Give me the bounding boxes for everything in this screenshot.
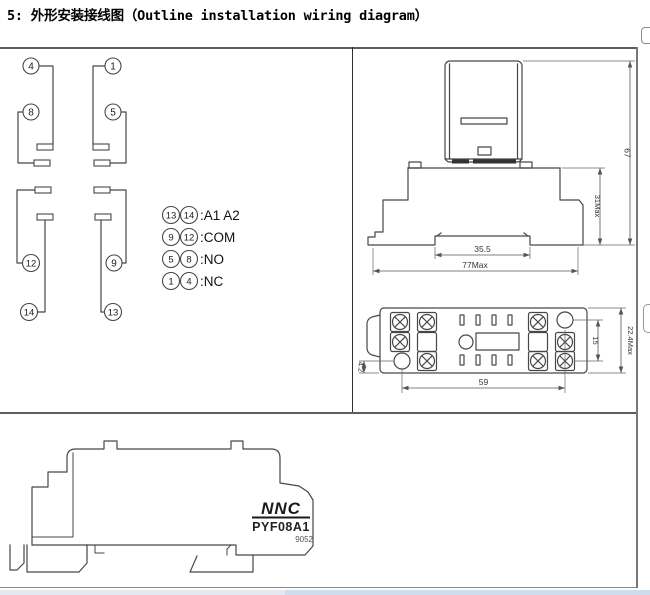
svg-text::A1 A2: :A1 A2 [200, 208, 240, 223]
profile-foot-right [190, 556, 253, 572]
screw-terminals [393, 315, 573, 369]
socket-profile-drawing: NNC PYF08A1 9052 [0, 413, 638, 588]
dim-31max: 31Max [593, 195, 602, 218]
svg-text:1: 1 [168, 277, 173, 288]
dim-77max: 77Max [462, 260, 488, 270]
pin-function-legend: 13 14 :A1 A2 9 12 :COM 5 8 :NO 1 4 :NC [163, 207, 240, 290]
date-code: 9052 [295, 535, 313, 544]
cut-off-ui-button-icon[interactable] [641, 27, 650, 44]
legend-row-nc: 1 4 :NC [163, 273, 224, 290]
brand-block: NNC PYF08A1 9052 [252, 499, 314, 544]
svg-text:8: 8 [28, 108, 34, 119]
svg-text::COM: :COM [200, 230, 235, 245]
svg-text:4: 4 [28, 62, 34, 73]
dim-59: 59 [479, 377, 489, 387]
pin-8: 8 [23, 104, 39, 120]
dim-15: 15 [591, 336, 600, 344]
svg-text:13: 13 [108, 308, 119, 319]
legend-row-a1a2: 13 14 :A1 A2 [163, 207, 240, 224]
mounting-hole-top-right [557, 312, 573, 328]
svg-text:9: 9 [168, 233, 173, 244]
socket-side-view [368, 162, 583, 245]
section-title: 5: 外形安装接线图（Outline installation wiring d… [7, 4, 428, 24]
outline-dimension-drawing: 35.5 77Max 67 31Max [353, 47, 638, 413]
pin-9: 9 [106, 255, 122, 271]
scroll-band-left[interactable] [0, 590, 285, 595]
svg-text:5: 5 [168, 255, 173, 266]
pin-5: 5 [105, 104, 121, 120]
mounting-hole-bottom-left [394, 353, 410, 369]
brand-logo-text: NNC [261, 499, 301, 518]
legend-row-no: 5 8 :NO [163, 251, 225, 268]
pin-13: 13 [105, 304, 122, 321]
socket-bottom-view [367, 308, 587, 373]
svg-text::NC: :NC [200, 274, 224, 289]
schematic-contacts [34, 144, 111, 220]
dim-35-5: 35.5 [474, 244, 491, 254]
svg-text:1: 1 [110, 62, 116, 73]
scroll-band-right[interactable] [285, 590, 650, 595]
svg-text:14: 14 [24, 308, 35, 319]
dim-67: 67 [623, 148, 633, 158]
profile-foot-left-2 [27, 545, 87, 572]
svg-text:4: 4 [186, 277, 191, 288]
relay-side-view [445, 61, 522, 164]
dim-22-4max: 22.4Max [626, 326, 635, 355]
svg-text:12: 12 [184, 233, 195, 244]
pin-1: 1 [105, 58, 121, 74]
pin-12: 12 [23, 255, 40, 272]
relay-pin-slots [459, 315, 519, 365]
pin-4: 4 [23, 58, 39, 74]
model-number: PYF08A1 [252, 520, 310, 534]
legend-row-com: 9 12 :COM [163, 229, 236, 246]
cut-off-panel-fragment [643, 304, 650, 333]
dim-4-2: 4.2 [357, 362, 366, 372]
pin-14: 14 [21, 304, 38, 321]
svg-text::NO: :NO [200, 252, 224, 267]
svg-text:13: 13 [166, 211, 177, 222]
svg-text:12: 12 [26, 259, 37, 270]
wiring-schematic: 4 1 8 5 12 9 14 13 13 14 :A1 A2 9 12 :CO… [0, 47, 352, 413]
din-clip [367, 315, 380, 357]
profile-foot-left [10, 545, 24, 570]
svg-text:5: 5 [110, 108, 116, 119]
svg-text:9: 9 [111, 259, 117, 270]
datasheet-page: 5: 外形安装接线图（Outline installation wiring d… [0, 0, 650, 595]
svg-text:8: 8 [186, 255, 191, 266]
svg-text:14: 14 [184, 211, 195, 222]
